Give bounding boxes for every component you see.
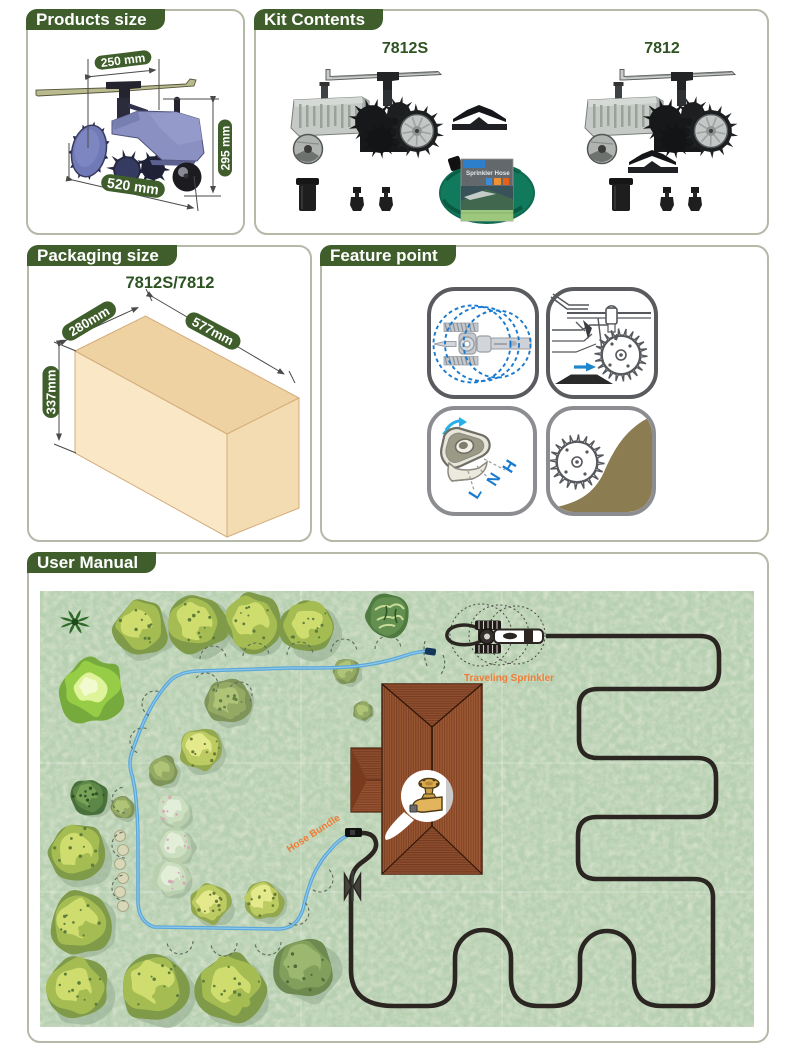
svg-text:250 mm: 250 mm — [100, 51, 146, 70]
svg-text:7812S: 7812S — [382, 40, 429, 57]
svg-text:7812: 7812 — [644, 40, 680, 57]
svg-text:295 mm: 295 mm — [218, 126, 232, 171]
svg-text:Sprinkler Hose: Sprinkler Hose — [466, 170, 510, 177]
svg-text:337mm: 337mm — [44, 370, 59, 415]
svg-text:Traveling Sprinkler: Traveling Sprinkler — [464, 673, 554, 684]
svg-text:280mm: 280mm — [66, 303, 112, 339]
svg-text:7812S/7812: 7812S/7812 — [125, 274, 214, 292]
